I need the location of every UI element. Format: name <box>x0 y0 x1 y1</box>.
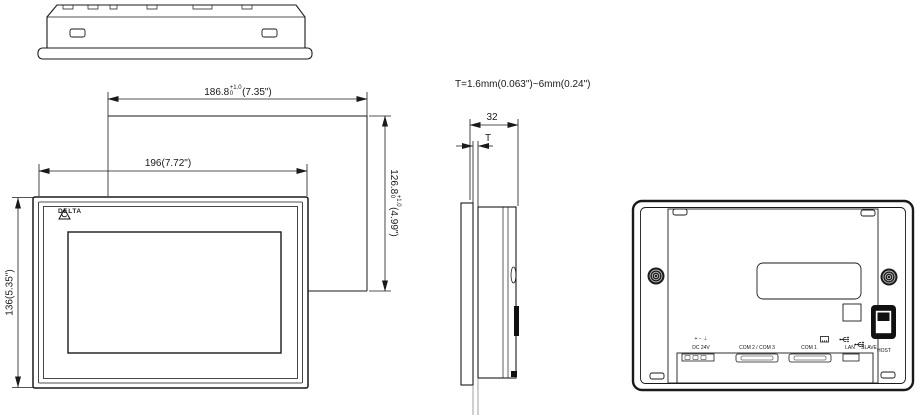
delta-triangle-icon <box>58 208 71 220</box>
side-view-slot <box>511 267 516 283</box>
rear-view <box>633 201 913 390</box>
power-label: DC 24V <box>671 345 731 351</box>
com23-connector <box>736 354 778 362</box>
drawing-linework <box>0 0 920 420</box>
side-view-bezel <box>461 203 473 385</box>
com1-connector <box>789 354 831 362</box>
hmi-dimension-drawing: DELTA 186.8+1.00(7.35") 196(7.72") 136(5… <box>0 0 920 420</box>
side-view-foot <box>511 371 517 377</box>
dimension-lines-front <box>12 92 391 388</box>
thickness-note: T=1.6mm(0.063")~6mm(0.24") <box>455 79 590 90</box>
usb-host-port <box>871 305 896 339</box>
mounting-wall <box>473 141 478 415</box>
lan-connector <box>843 354 859 361</box>
top-view <box>38 5 312 59</box>
dim-panel-thickness: T <box>478 133 498 144</box>
rear-connector-bay <box>677 353 873 383</box>
rear-connectors <box>682 354 859 362</box>
delta-logo: DELTA <box>58 208 82 215</box>
screw-left <box>648 268 665 285</box>
host-label: HOST <box>854 348 914 354</box>
power-symbols: + − ⊥ <box>671 336 731 342</box>
dim-depth: 32 <box>472 112 512 123</box>
front-view <box>33 197 308 388</box>
rear-label-plate <box>757 263 861 299</box>
front-view-screen <box>68 232 281 353</box>
dim-cutout-height: 126.8+1.00(4.99") <box>388 143 400 263</box>
side-view-usb-bump <box>514 306 519 336</box>
dim-cutout-width: 186.8+1.00(7.35") <box>178 85 298 98</box>
top-view-slot-right <box>262 29 277 37</box>
com23-label: COM 2 / COM 3 <box>727 345 787 351</box>
top-view-connector-notches <box>63 5 252 9</box>
dim-front-width: 196(7.72") <box>113 158 223 169</box>
rear-small-square <box>843 304 861 321</box>
dim-front-height: 136(5.35") <box>5 233 16 353</box>
screw-right <box>881 269 898 286</box>
top-view-front-bezel <box>38 48 312 59</box>
side-view-body <box>478 207 516 378</box>
panel-cutout-outline <box>108 116 367 291</box>
top-view-slot-left <box>70 29 85 37</box>
